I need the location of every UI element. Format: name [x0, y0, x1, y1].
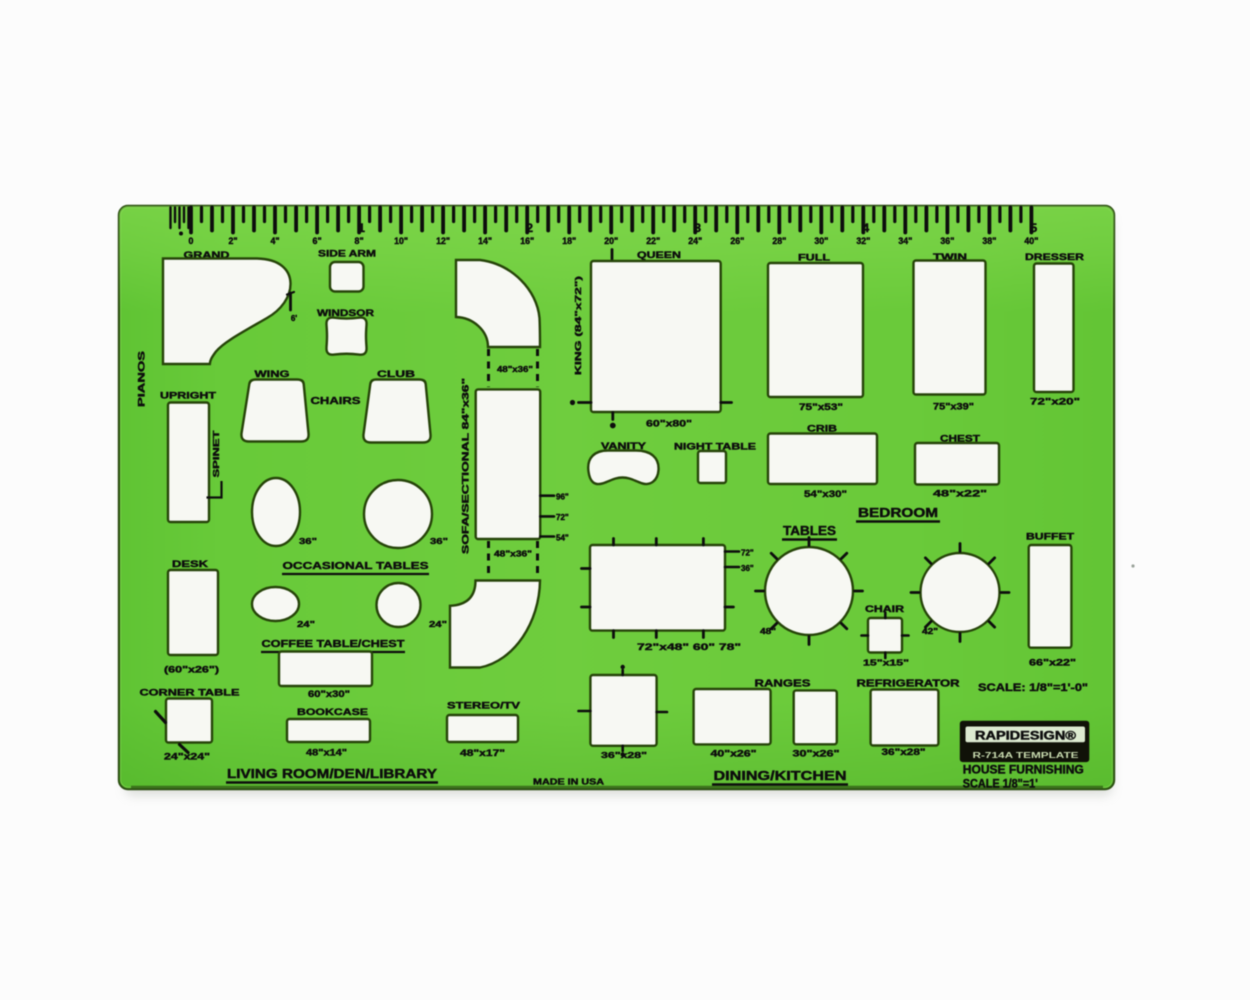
- svg-text:40"x26": 40"x26": [711, 749, 757, 759]
- svg-text:0: 0: [189, 236, 194, 246]
- svg-text:66"x22": 66"x22": [1029, 658, 1076, 668]
- svg-text:2": 2": [228, 236, 237, 246]
- svg-text:6': 6': [291, 314, 297, 323]
- svg-text:COFFEE TABLE/CHEST: COFFEE TABLE/CHEST: [262, 638, 406, 650]
- svg-text:OCCASIONAL TABLES: OCCASIONAL TABLES: [283, 560, 429, 572]
- svg-text:60"x30": 60"x30": [308, 689, 350, 699]
- svg-text:14": 14": [478, 236, 492, 246]
- svg-text:(60"x26"): (60"x26"): [164, 665, 219, 675]
- svg-text:16": 16": [520, 236, 534, 246]
- svg-text:36": 36": [430, 536, 448, 546]
- svg-text:4": 4": [270, 236, 279, 246]
- svg-text:42": 42": [922, 627, 938, 636]
- svg-text:36": 36": [299, 536, 317, 546]
- svg-text:54": 54": [556, 533, 569, 542]
- svg-text:30"x26": 30"x26": [793, 749, 840, 759]
- svg-text:HOUSE FURNISHING: HOUSE FURNISHING: [963, 765, 1084, 777]
- svg-text:48"x22": 48"x22": [933, 489, 987, 500]
- svg-text:SOFA/SECTIONAL 84"x36": SOFA/SECTIONAL 84"x36": [461, 378, 471, 554]
- svg-text:15"x15": 15"x15": [863, 658, 909, 668]
- svg-text:10": 10": [394, 236, 408, 246]
- svg-text:2: 2: [526, 221, 533, 235]
- svg-text:BOOKCASE: BOOKCASE: [297, 707, 368, 718]
- svg-text:24": 24": [688, 236, 702, 246]
- svg-text:5: 5: [1031, 221, 1038, 235]
- svg-text:CHAIRS: CHAIRS: [311, 396, 361, 407]
- svg-text:CORNER TABLE: CORNER TABLE: [140, 688, 240, 699]
- svg-text:SCALE 1/8"=1': SCALE 1/8"=1': [963, 779, 1038, 791]
- svg-text:LIVING ROOM/DEN/LIBRARY: LIVING ROOM/DEN/LIBRARY: [227, 766, 437, 781]
- svg-text:48"x36": 48"x36": [497, 365, 533, 374]
- svg-text:RAPIDESIGN®: RAPIDESIGN®: [975, 730, 1077, 742]
- svg-text:8": 8": [355, 236, 364, 246]
- svg-text:QUEEN: QUEEN: [637, 250, 681, 261]
- svg-text:REFRIGERATOR: REFRIGERATOR: [857, 679, 961, 690]
- svg-text:32": 32": [856, 236, 870, 246]
- svg-text:48": 48": [760, 627, 776, 636]
- svg-text:UPRIGHT: UPRIGHT: [160, 391, 216, 402]
- svg-text:60"x80": 60"x80": [646, 419, 692, 430]
- svg-text:75"x53": 75"x53": [799, 402, 843, 413]
- svg-text:26": 26": [730, 236, 744, 246]
- svg-text:DESK: DESK: [172, 559, 208, 570]
- svg-text:6": 6": [313, 236, 322, 246]
- svg-text:48"x14": 48"x14": [306, 748, 347, 758]
- svg-text:12": 12": [436, 236, 450, 246]
- svg-text:4: 4: [862, 221, 869, 235]
- svg-text:DRESSER: DRESSER: [1025, 252, 1084, 263]
- svg-text:TABLES: TABLES: [783, 524, 836, 538]
- svg-text:34": 34": [898, 236, 912, 246]
- svg-text:3: 3: [694, 221, 701, 235]
- svg-text:SPINET: SPINET: [211, 429, 221, 477]
- svg-text:BEDROOM: BEDROOM: [858, 506, 938, 520]
- svg-text:40": 40": [1024, 236, 1038, 246]
- svg-text:36"x28": 36"x28": [601, 750, 647, 760]
- svg-text:36"x28": 36"x28": [882, 747, 926, 757]
- svg-text:BUFFET: BUFFET: [1026, 532, 1074, 543]
- svg-text:1: 1: [358, 221, 365, 235]
- svg-text:WINDSOR: WINDSOR: [317, 308, 374, 319]
- svg-text:SIDE ARM: SIDE ARM: [318, 249, 376, 260]
- svg-text:72"x48" 60" 78": 72"x48" 60" 78": [637, 642, 741, 653]
- svg-text:20": 20": [604, 236, 618, 246]
- svg-text:30": 30": [814, 236, 828, 246]
- svg-text:36": 36": [940, 236, 954, 246]
- svg-text:38": 38": [982, 236, 996, 246]
- svg-text:MADE IN USA: MADE IN USA: [533, 777, 604, 787]
- svg-text:28": 28": [772, 236, 786, 246]
- svg-text:72": 72": [556, 513, 569, 522]
- svg-text:54"x30": 54"x30": [804, 489, 847, 500]
- svg-text:SCALE: 1/8"=1'-0": SCALE: 1/8"=1'-0": [978, 682, 1088, 694]
- svg-text:KING (84"x72"): KING (84"x72"): [573, 276, 583, 375]
- svg-text:R-714A TEMPLATE: R-714A TEMPLATE: [973, 751, 1080, 760]
- svg-text:DINING/KITCHEN: DINING/KITCHEN: [714, 768, 847, 783]
- svg-text:48"x17": 48"x17": [460, 748, 505, 758]
- svg-text:STEREO/TV: STEREO/TV: [447, 701, 521, 712]
- svg-text:48"x36": 48"x36": [494, 550, 532, 559]
- svg-text:22": 22": [646, 236, 660, 246]
- svg-text:PIANOS: PIANOS: [137, 351, 148, 407]
- svg-text:36": 36": [741, 564, 754, 573]
- svg-text:24": 24": [297, 619, 315, 629]
- svg-text:24": 24": [429, 619, 447, 629]
- svg-text:72": 72": [741, 549, 754, 558]
- svg-text:24"x24": 24"x24": [164, 752, 210, 762]
- svg-text:18": 18": [562, 236, 576, 246]
- svg-text:96": 96": [556, 493, 569, 502]
- svg-text:75"x39": 75"x39": [933, 402, 974, 413]
- svg-text:72"x20": 72"x20": [1030, 397, 1080, 408]
